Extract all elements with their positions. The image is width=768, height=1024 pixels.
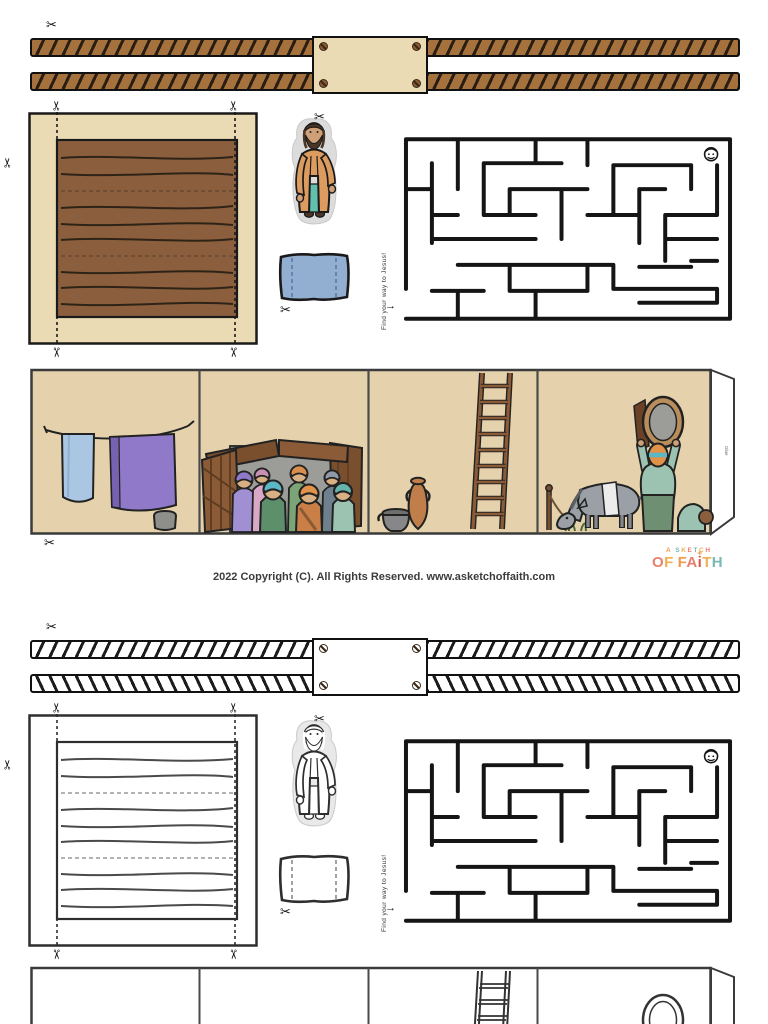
brand-logo: ASKETCH OFFAiTH [652, 548, 752, 571]
jesus-figure-cutout [283, 116, 345, 228]
screw-icon [319, 42, 328, 51]
screw-icon [412, 79, 421, 88]
scissors-icon: ✂ [227, 347, 240, 358]
scissors-icon: ✂ [314, 110, 325, 123]
printable-craft-sheet: ✂ ✂ ✂ ✂ ✂ ✂ ✂ ✂ Find your way to Jesus! … [0, 0, 768, 1024]
scissors-icon: ✂ [227, 949, 240, 960]
scissors-icon: ✂ [50, 100, 63, 111]
scissors-icon: ✂ [227, 100, 240, 111]
scissors-icon: ✂ [50, 949, 63, 960]
scissors-icon: ✂ [50, 347, 63, 358]
small-pot [154, 511, 176, 530]
scissors-icon: ✂ [1, 157, 14, 168]
towel-blue [62, 434, 94, 502]
scissors-icon: ✂ [46, 620, 57, 633]
pole-center-plate [312, 36, 428, 94]
roof-mat-bw [28, 714, 258, 947]
jesus-figure-cutout-bw [283, 718, 345, 830]
mat-blanket-cutout [277, 251, 351, 303]
pole-center-plate-bw [312, 638, 428, 696]
screw-icon [412, 42, 421, 51]
scissors-icon: ✂ [50, 702, 63, 713]
screw-icon [412, 681, 421, 690]
scissors-icon: ✂ [314, 712, 325, 725]
doorway-crowd [202, 440, 362, 532]
scissors-icon: ✂ [280, 303, 291, 316]
glue-tab-label: Glue [724, 446, 729, 456]
maze-entrance-arrow: → [385, 300, 396, 312]
house-scene-strip-bw: Glue [30, 966, 742, 1024]
maze [396, 130, 740, 328]
maze-bw [396, 732, 740, 930]
glue-tab [711, 370, 734, 534]
screw-icon [319, 681, 328, 690]
house-scene-strip: Glue [30, 368, 742, 536]
mat-blanket-cutout-bw [277, 853, 351, 905]
roof-mat [28, 112, 258, 345]
scissors-icon: ✂ [44, 536, 55, 549]
brand-logo-bottom-line: OFFAiTH [652, 555, 752, 571]
maze-entrance-arrow: → [385, 902, 396, 914]
scissors-icon: ✂ [46, 18, 57, 31]
screw-icon [412, 644, 421, 653]
screw-icon [319, 79, 328, 88]
copyright-text: 2022 Copyright (C). All Rights Reserved.… [0, 571, 768, 583]
scissors-icon: ✂ [227, 702, 240, 713]
scissors-icon: ✂ [1, 759, 14, 770]
screw-icon [319, 644, 328, 653]
glue-tab-bw [711, 968, 734, 1024]
scissors-icon: ✂ [280, 905, 291, 918]
